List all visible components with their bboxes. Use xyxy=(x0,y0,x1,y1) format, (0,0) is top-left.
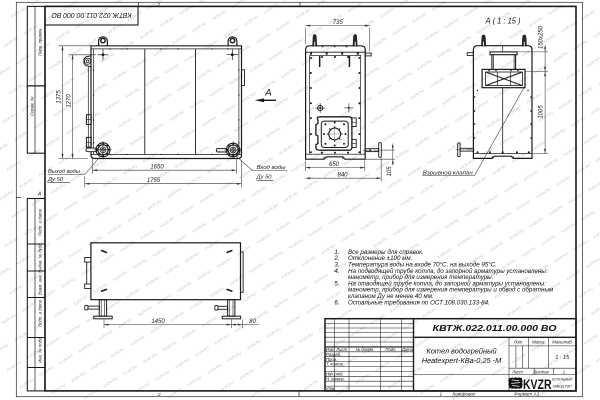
svg-text:ЗАВОД РЭП: ЗАВОД РЭП xyxy=(553,384,572,389)
svg-text:2: 2 xyxy=(157,392,161,397)
svg-text:Инв. № подл.: Инв. № подл. xyxy=(38,336,43,363)
svg-text:Взам. инв. №: Взам. инв. № xyxy=(38,268,43,295)
svg-text:1450: 1450 xyxy=(151,319,165,325)
svg-text:Подп. и дата: Подп. и дата xyxy=(38,208,43,236)
svg-text:6.: 6. xyxy=(334,299,339,306)
svg-text:Перв. примен.: Перв. примен. xyxy=(38,27,43,56)
svg-text:1: 1 xyxy=(563,369,565,374)
svg-text:1375: 1375 xyxy=(56,90,62,104)
svg-text:Подп. и дата: Подп. и дата xyxy=(38,299,43,327)
svg-text:Взрывной клапан: Взрывной клапан xyxy=(423,169,473,176)
svg-text:1270: 1270 xyxy=(67,94,73,108)
svg-text:105: 105 xyxy=(387,166,393,177)
svg-text:Н. контр.: Н. контр. xyxy=(326,376,345,381)
svg-text:Вход воды: Вход воды xyxy=(257,165,286,171)
svg-text:Масштаб: Масштаб xyxy=(552,339,572,344)
svg-text:Формат А3: Формат А3 xyxy=(514,392,540,397)
svg-text:735: 735 xyxy=(333,20,344,26)
svg-text:Heatexpert-КВа-0,25 -М: Heatexpert-КВа-0,25 -М xyxy=(422,356,502,365)
svg-text:650: 650 xyxy=(329,162,340,168)
svg-text:КВТЖ.022.011.00.000 ВО: КВТЖ.022.011.00.000 ВО xyxy=(51,11,131,20)
svg-text:Ду 50: Ду 50 xyxy=(47,177,64,183)
svg-text:Остальные требования по ОСТ 10: Остальные требования по ОСТ 108.030.133-… xyxy=(348,299,490,306)
svg-text:840: 840 xyxy=(337,173,348,179)
svg-text:150х250: 150х250 xyxy=(539,25,545,49)
svg-text:А: А xyxy=(37,192,42,198)
svg-text:Лист: Лист xyxy=(511,369,523,374)
svg-text:А: А xyxy=(264,88,271,99)
svg-text:Копировал: Копировал xyxy=(453,392,476,397)
svg-text:4.: 4. xyxy=(334,268,339,275)
svg-text:Дата: Дата xyxy=(401,347,414,352)
svg-text:Утв.: Утв. xyxy=(326,386,336,391)
svg-text:KVZR: KVZR xyxy=(523,377,552,392)
svg-text:А ( 1 : 15 ): А ( 1 : 15 ) xyxy=(485,15,521,25)
svg-text:№ докум.: № докум. xyxy=(356,347,374,352)
svg-text:Подп.: Подп. xyxy=(385,347,396,352)
svg-text:80: 80 xyxy=(249,319,256,325)
svg-text:1005: 1005 xyxy=(539,105,545,119)
svg-text:КВТЖ.022.011.00.000 ВО: КВТЖ.022.011.00.000 ВО xyxy=(433,323,557,333)
svg-text:Масса: Масса xyxy=(532,339,545,344)
svg-text:Ду 50: Ду 50 xyxy=(255,175,272,181)
svg-text:Т. контр.: Т. контр. xyxy=(326,362,344,367)
svg-text:1650: 1650 xyxy=(150,164,164,170)
svg-text:Справ. №: Справ. № xyxy=(30,96,35,116)
svg-text:Листов: Листов xyxy=(532,369,549,374)
svg-text:Лит.: Лит. xyxy=(513,339,524,344)
svg-text:1: 1 xyxy=(440,392,443,397)
svg-text:1 : 15: 1 : 15 xyxy=(555,355,570,361)
svg-text:5.: 5. xyxy=(334,280,339,287)
svg-text:2: 2 xyxy=(157,2,161,7)
svg-text:1755: 1755 xyxy=(147,178,161,184)
svg-text:Инв. № дубл.: Инв. № дубл. xyxy=(38,242,43,268)
svg-text:Котел водогрейный: Котел водогрейный xyxy=(426,346,496,355)
svg-text:Выход воды: Выход воды xyxy=(48,169,80,175)
svg-text:КОТЕЛЬНЫЙ: КОТЕЛЬНЫЙ xyxy=(552,377,573,382)
